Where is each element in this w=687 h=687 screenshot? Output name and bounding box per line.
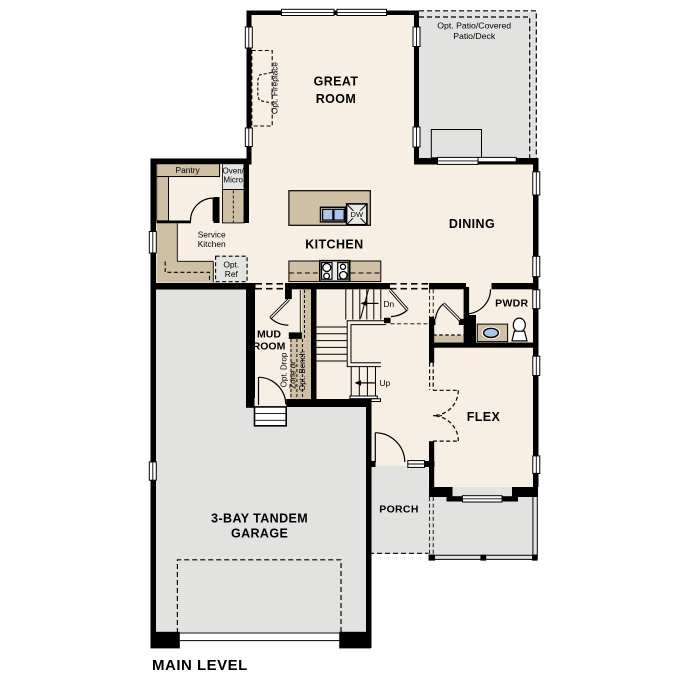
svg-text:Opt. Drop: Opt. Drop xyxy=(280,352,289,387)
svg-text:Opt. Fireplace: Opt. Fireplace xyxy=(270,62,280,114)
svg-text:Oven/: Oven/ xyxy=(223,166,245,175)
svg-text:GREAT: GREAT xyxy=(314,75,359,89)
svg-text:Ref: Ref xyxy=(225,269,239,279)
svg-text:MUD: MUD xyxy=(257,329,281,341)
svg-text:3-BAY TANDEM: 3-BAY TANDEM xyxy=(211,511,308,525)
svg-text:Dn: Dn xyxy=(384,299,395,309)
svg-text:DW: DW xyxy=(351,210,364,219)
svg-text:DINING: DINING xyxy=(449,217,495,231)
svg-text:MAIN LEVEL: MAIN LEVEL xyxy=(152,657,248,674)
svg-text:Opt. Bench: Opt. Bench xyxy=(298,351,307,391)
svg-text:Kitchen: Kitchen xyxy=(198,239,226,249)
svg-text:FLEX: FLEX xyxy=(467,410,501,424)
svg-text:KITCHEN: KITCHEN xyxy=(305,238,363,252)
svg-text:PWDR: PWDR xyxy=(495,298,528,310)
svg-text:Opt.: Opt. xyxy=(223,260,239,270)
svg-text:Up: Up xyxy=(380,378,391,388)
svg-text:Opt. Patio/Covered: Opt. Patio/Covered xyxy=(437,20,511,30)
svg-text:Patio/Deck: Patio/Deck xyxy=(453,31,496,41)
svg-text:PORCH: PORCH xyxy=(379,504,418,516)
svg-text:ROOM: ROOM xyxy=(253,341,286,353)
svg-text:Service: Service xyxy=(198,229,226,239)
svg-text:Micro: Micro xyxy=(223,176,243,185)
svg-text:Pantry: Pantry xyxy=(175,165,200,175)
svg-text:ROOM: ROOM xyxy=(316,92,357,106)
svg-text:Zone or: Zone or xyxy=(289,361,298,389)
svg-text:GARAGE: GARAGE xyxy=(231,527,288,541)
